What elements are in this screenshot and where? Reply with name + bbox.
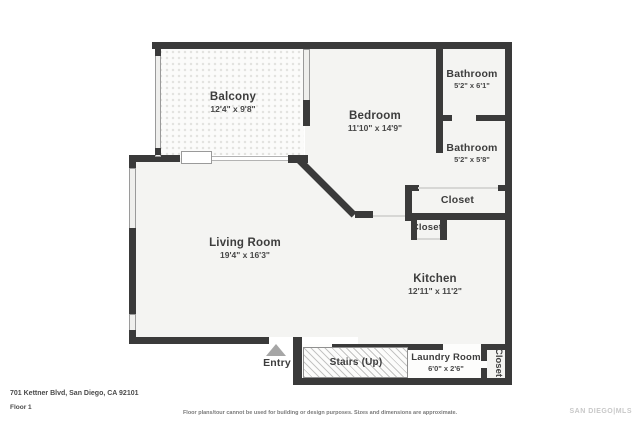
wall-bedroom-bath-divider: [436, 49, 443, 153]
balcony-bottom-window: [181, 151, 212, 164]
balcony-dims: 12'4" x 9'8": [173, 104, 293, 115]
balcony-label: Balcony 12'4" x 9'8": [173, 90, 293, 115]
kitchen-label: Kitchen 12'11" x 11'2": [375, 272, 495, 297]
bathroom1-label: Bathroom 5'2" x 6'1": [432, 68, 512, 91]
kitchen-name: Kitchen: [375, 272, 495, 286]
wall-bath-separator-right: [476, 115, 505, 121]
entry-arrow-icon: [266, 344, 286, 356]
living-room-label: Living Room 19'4" x 16'3": [185, 236, 305, 261]
laundry-dims: 6'0" x 2'6": [408, 364, 484, 373]
bathroom2-dims: 5'2" x 5'8": [432, 155, 512, 164]
balcony-left-window: [155, 49, 161, 157]
bathroom2-label: Bathroom 5'2" x 5'8": [432, 142, 512, 165]
closet-top-cap-right: [498, 185, 508, 191]
balcony-name: Balcony: [173, 90, 293, 104]
entry-name: Entry: [250, 357, 304, 370]
laundry-name: Laundry Room: [408, 353, 484, 364]
closet-bottom-wall: [405, 213, 508, 220]
closet-slider-line: [418, 187, 499, 189]
bedroom-dims: 11'10" x 14'9": [315, 123, 435, 134]
bedroom-door-opening: [373, 215, 406, 217]
stairs-label: Stairs (Up): [306, 357, 406, 370]
closet2-name: Closet: [406, 222, 448, 234]
closet3-label: Closet: [488, 347, 504, 378]
entry-label: Entry: [250, 357, 304, 370]
disclaimer-text: Floor plans/tour cannot be used for buil…: [0, 410, 640, 416]
closet1-name: Closet: [415, 194, 500, 207]
balcony-left-window-cap-bottom: [155, 148, 161, 155]
wall-hall-stub: [355, 211, 373, 218]
bedroom-label: Bedroom 11'10" x 14'9": [315, 109, 435, 134]
wall-top: [152, 42, 512, 49]
balcony-right-wall: [303, 100, 310, 126]
bathroom1-dims: 5'2" x 6'1": [432, 81, 512, 90]
floor-plan: Balcony 12'4" x 9'8" Bedroom 11'10" x 14…: [0, 0, 640, 427]
wall-living-bottom: [129, 337, 269, 344]
wall-left-mid: [129, 228, 136, 316]
wall-bottom: [296, 378, 512, 385]
balcony-right-window: [303, 49, 310, 102]
mls-watermark: SAN DIEGO|MLS: [569, 408, 632, 415]
closet2-label: Closet: [406, 222, 448, 234]
closet1-label: Closet: [415, 194, 500, 207]
stairs-name: Stairs (Up): [306, 357, 406, 370]
living-room-name: Living Room: [185, 236, 305, 250]
balcony-left-window-cap-top: [155, 49, 161, 56]
wall-left-bottom-corner: [129, 330, 136, 344]
living-room-dims: 19'4" x 16'3": [185, 250, 305, 261]
small-closet-door-line: [417, 238, 440, 240]
balcony-sliding-door: [212, 156, 289, 161]
left-window-upper: [129, 168, 136, 230]
bathroom2-name: Bathroom: [432, 142, 512, 155]
laundry-label: Laundry Room 6'0" x 2'6": [408, 353, 484, 373]
kitchen-dims: 12'11" x 11'2": [375, 286, 495, 297]
property-address: 701 Kettner Blvd, San Diego, CA 92101: [10, 390, 139, 397]
wall-bath-separator-left: [443, 115, 452, 121]
bathroom1-name: Bathroom: [432, 68, 512, 81]
bedroom-name: Bedroom: [315, 109, 435, 123]
